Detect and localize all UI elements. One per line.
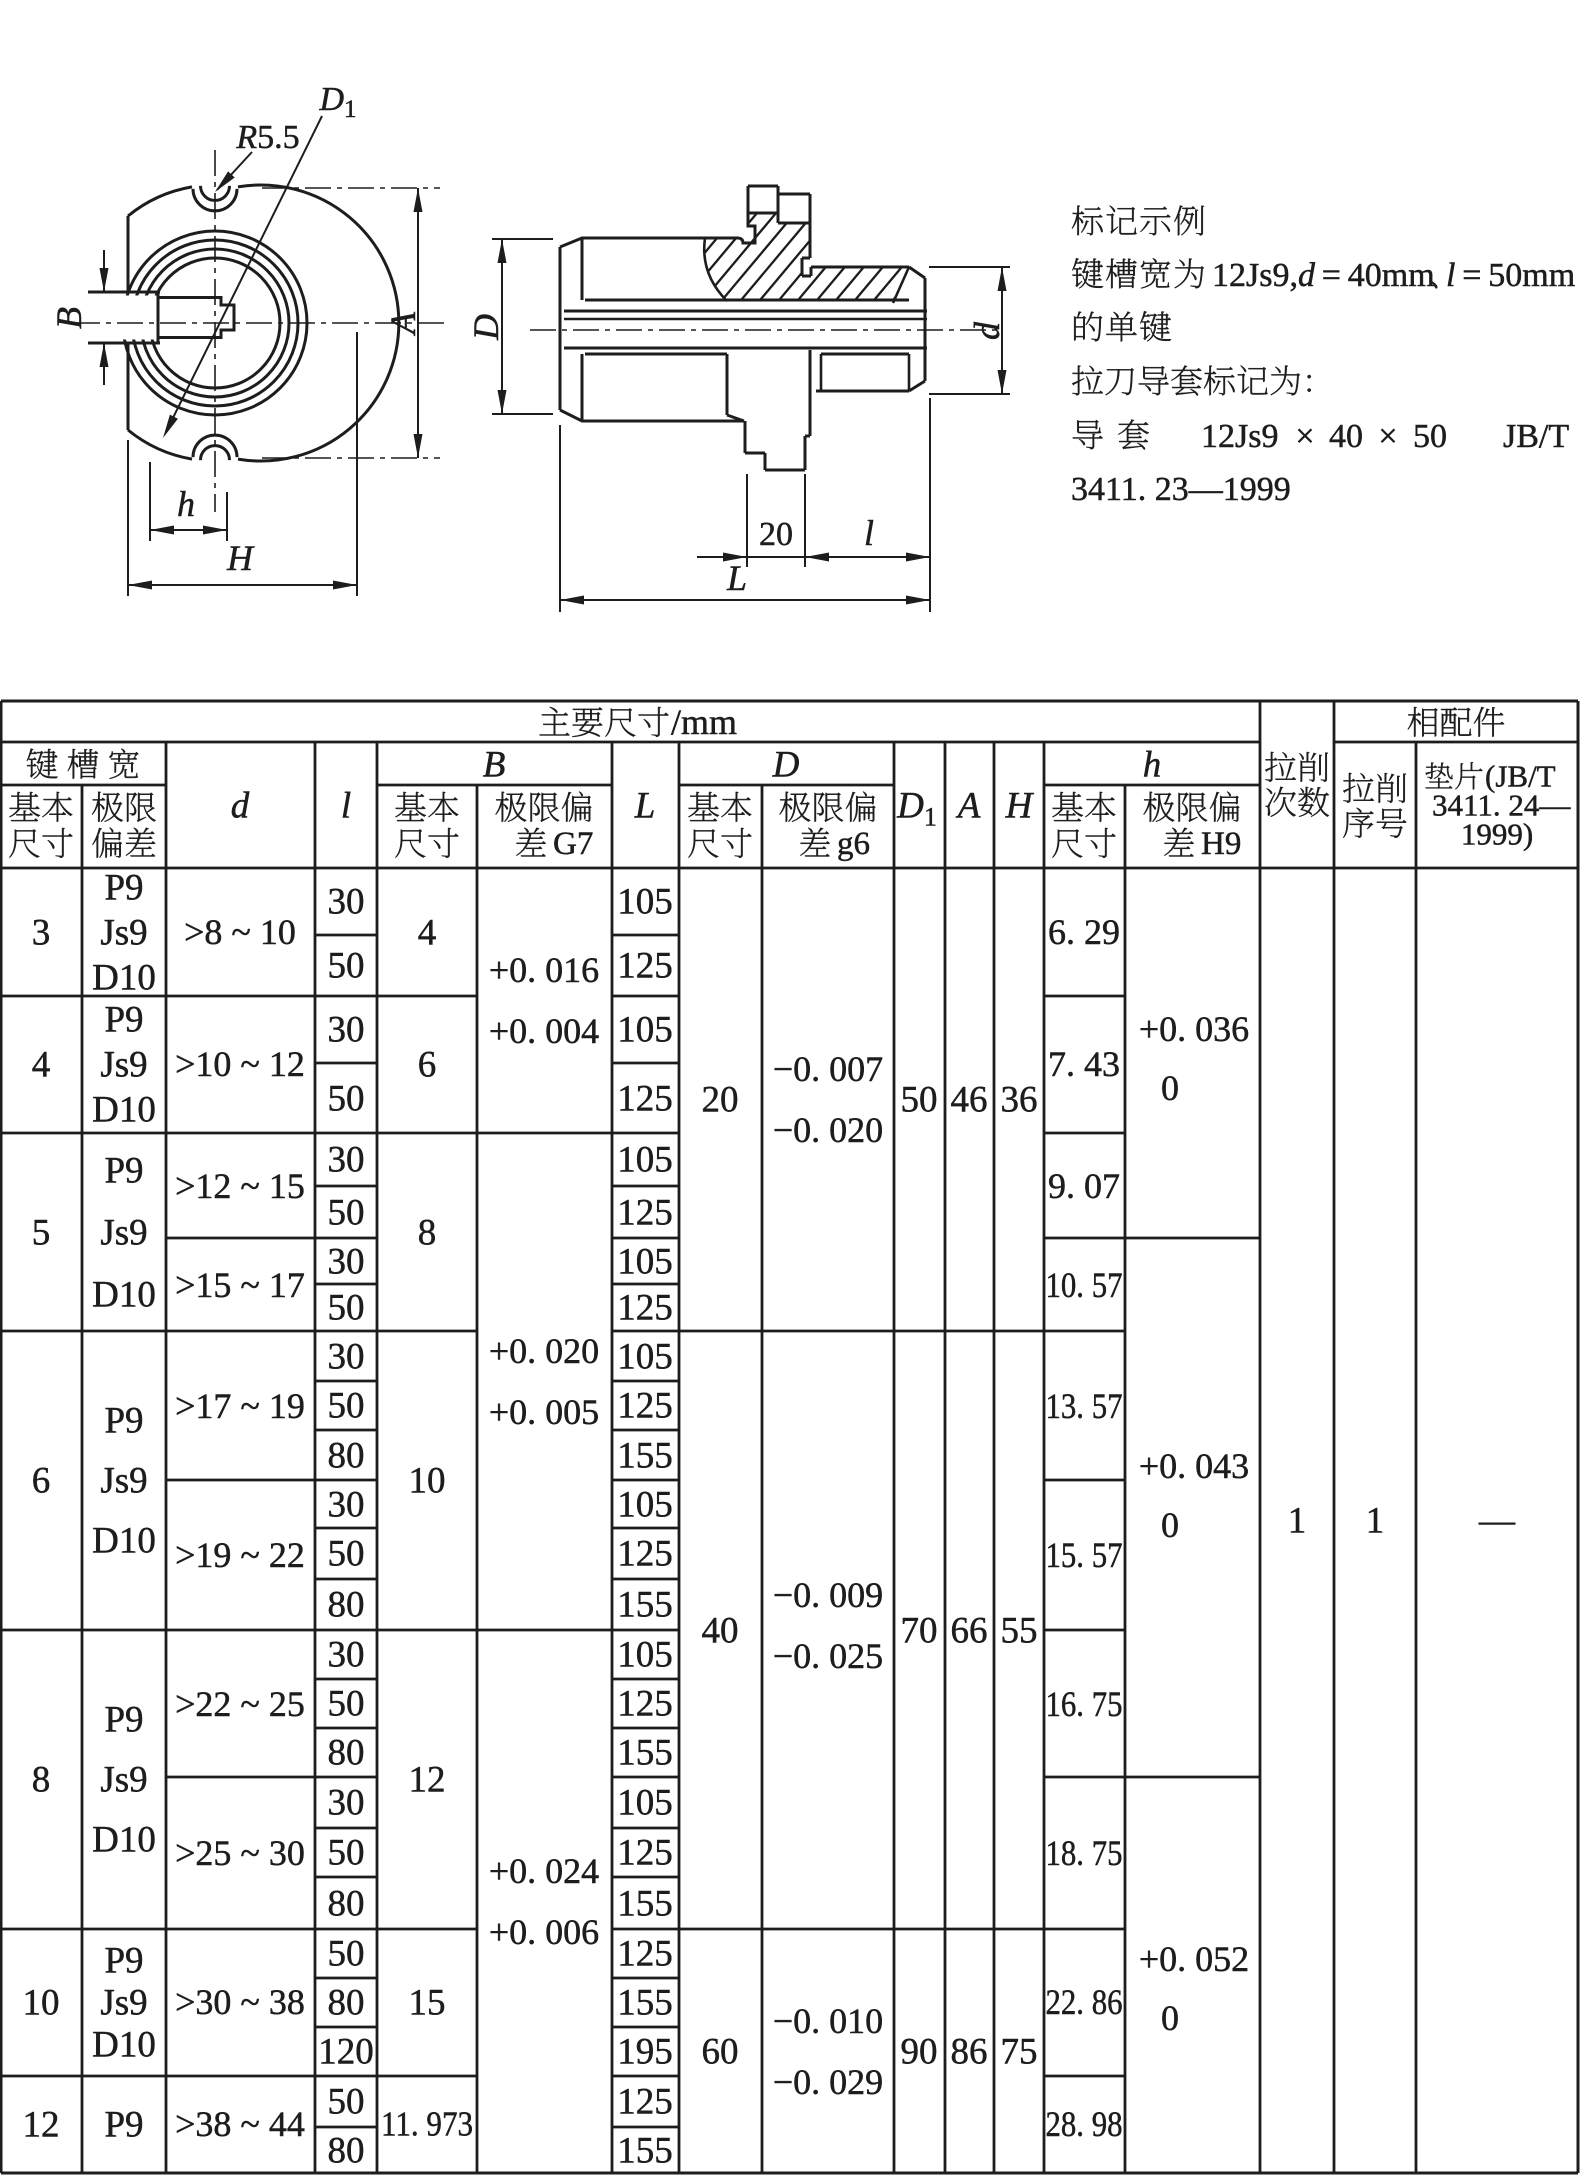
svg-text:P9: P9 [104,1400,143,1441]
svg-text:125: 125 [617,1832,673,1873]
svg-text:d: d [231,785,250,826]
svg-text:16. 75: 16. 75 [1046,1684,1123,1724]
svg-text:G7: G7 [553,826,593,862]
svg-text:6: 6 [418,1044,437,1085]
svg-text:125: 125 [617,1385,673,1426]
svg-text:125: 125 [617,945,673,986]
svg-text:l = 50mm: l = 50mm [1446,257,1575,294]
svg-text:125: 125 [617,2081,673,2122]
svg-text:P9: P9 [104,1940,143,1981]
svg-text:125: 125 [617,1533,673,1574]
svg-text:−0. 009: −0. 009 [773,1575,883,1615]
svg-text:−0. 029: −0. 029 [773,2062,883,2102]
svg-text:8: 8 [32,1759,51,1800]
svg-text:30: 30 [328,1009,365,1050]
svg-text:D10: D10 [92,957,156,998]
svg-text:6. 29: 6. 29 [1048,912,1120,952]
svg-text:+0. 024: +0. 024 [489,1851,599,1891]
svg-text:155: 155 [617,2130,673,2171]
svg-text:125: 125 [617,1078,673,1119]
svg-text:90: 90 [901,2031,938,2072]
svg-text:70: 70 [901,1610,938,1651]
svg-text:6: 6 [32,1460,51,1501]
svg-text:−0. 010: −0. 010 [773,2001,883,2041]
svg-text:105: 105 [617,1139,673,1180]
svg-text:40: 40 [1329,418,1363,455]
svg-text:105: 105 [617,1241,673,1282]
svg-text:80: 80 [328,1584,365,1625]
svg-text:+0. 036: +0. 036 [1139,1009,1249,1049]
svg-text:12: 12 [409,1759,446,1800]
svg-text:155: 155 [617,1732,673,1773]
svg-text:Js9: Js9 [100,1212,147,1253]
svg-text:P9: P9 [104,2104,143,2145]
svg-text:d: d [967,321,1007,340]
svg-text:>25 ~ 30: >25 ~ 30 [175,1833,305,1873]
svg-text:Js9: Js9 [100,1759,147,1800]
svg-text:P9: P9 [104,999,143,1040]
svg-text:−0. 007: −0. 007 [773,1049,883,1089]
svg-text:D10: D10 [92,1089,156,1130]
svg-text:12Js9,d = 40mm: 12Js9,d = 40mm [1212,257,1435,294]
svg-text:105: 105 [617,1336,673,1377]
svg-text:18. 75: 18. 75 [1046,1833,1123,1873]
svg-text:Js9: Js9 [100,912,147,953]
svg-text:9. 07: 9. 07 [1048,1166,1120,1206]
svg-text:+0. 043: +0. 043 [1139,1446,1249,1486]
svg-text:12Js9: 12Js9 [1201,418,1278,455]
svg-text:13. 57: 13. 57 [1046,1386,1123,1426]
svg-text:A: A [383,311,423,336]
svg-text:8: 8 [418,1212,437,1253]
svg-text:15. 57: 15. 57 [1046,1535,1123,1575]
svg-text:125: 125 [617,1287,673,1328]
svg-text:L: L [634,785,656,826]
svg-text:Js9: Js9 [100,1044,147,1085]
svg-text:22. 86: 22. 86 [1046,1982,1123,2022]
svg-text:−0. 025: −0. 025 [773,1636,883,1676]
svg-text:H9: H9 [1201,826,1241,862]
svg-text:L: L [726,558,747,598]
svg-text:>17 ~ 19: >17 ~ 19 [175,1386,305,1426]
svg-text:12: 12 [23,2104,60,2145]
svg-text:30: 30 [328,1484,365,1525]
svg-text:h: h [177,484,195,524]
svg-text:+0. 052: +0. 052 [1139,1939,1249,1979]
svg-text:11. 973: 11. 973 [381,2105,473,2144]
svg-text:+0. 004: +0. 004 [489,1011,599,1051]
svg-text:>19 ~ 22: >19 ~ 22 [175,1535,305,1575]
svg-text:50: 50 [328,1192,365,1233]
svg-text:7. 43: 7. 43 [1048,1044,1120,1084]
svg-text:105: 105 [617,1634,673,1675]
svg-text:30: 30 [328,1782,365,1823]
svg-text:B: B [49,307,89,329]
svg-text:D10: D10 [92,1274,156,1315]
svg-text:50: 50 [328,945,365,986]
svg-text:—: — [1478,1500,1516,1540]
svg-text:h: h [1143,744,1162,785]
svg-text:4: 4 [32,1044,51,1085]
svg-text:125: 125 [617,1192,673,1233]
svg-text:P9: P9 [104,1150,143,1191]
svg-text:A: A [955,785,981,826]
svg-text:>30 ~ 38: >30 ~ 38 [175,1982,305,2022]
svg-text:28. 98: 28. 98 [1046,2104,1123,2144]
svg-text:75: 75 [1001,2031,1038,2072]
svg-text:105: 105 [617,1009,673,1050]
svg-text:105: 105 [617,1782,673,1823]
svg-text:30: 30 [328,1336,365,1377]
svg-text:155: 155 [617,1584,673,1625]
svg-text:30: 30 [328,1241,365,1282]
svg-text:155: 155 [617,1883,673,1924]
svg-text:R5.5: R5.5 [235,119,299,156]
svg-text:JB/T: JB/T [1503,418,1569,455]
svg-text:46: 46 [951,1079,988,1120]
svg-text:>8 ~ 10: >8 ~ 10 [184,912,296,952]
svg-text:55: 55 [1001,1610,1038,1651]
svg-text:>10 ~ 12: >10 ~ 12 [175,1044,305,1084]
svg-text:50: 50 [328,1078,365,1119]
svg-text:5: 5 [32,1212,51,1253]
svg-text:10: 10 [23,1982,60,2023]
svg-text:l: l [341,785,351,826]
svg-text:1999): 1999) [1461,816,1533,851]
svg-text:×: × [1295,418,1314,455]
svg-text:4: 4 [418,912,437,953]
svg-text:D1: D1 [896,785,937,831]
svg-text:>15 ~ 17: >15 ~ 17 [175,1265,305,1305]
svg-text:30: 30 [328,881,365,922]
svg-text:30: 30 [328,1634,365,1675]
svg-text:50: 50 [328,1385,365,1426]
svg-text:10. 57: 10. 57 [1046,1265,1123,1305]
svg-text:36: 36 [1001,1079,1038,1120]
svg-text:155: 155 [617,1435,673,1476]
svg-text:+0. 020: +0. 020 [489,1331,599,1371]
svg-text:86: 86 [951,2031,988,2072]
svg-text:125: 125 [617,1933,673,1974]
svg-text:B: B [483,744,506,785]
svg-text:D10: D10 [92,1520,156,1561]
svg-text:66: 66 [951,1610,988,1651]
svg-text:H: H [226,538,255,578]
svg-text:50: 50 [328,1933,365,1974]
svg-text:+0. 016: +0. 016 [489,950,599,990]
svg-text:20: 20 [759,516,793,553]
svg-text:Js9: Js9 [100,1982,147,2023]
svg-text:60: 60 [702,2031,739,2072]
svg-text:3411. 23—1999: 3411. 23—1999 [1071,471,1291,508]
svg-text:50: 50 [901,1079,938,1120]
svg-text:D10: D10 [92,2024,156,2065]
svg-text:×: × [1378,418,1397,455]
svg-text:40: 40 [702,1610,739,1651]
svg-text:D1: D1 [318,81,356,123]
svg-text:D: D [772,744,800,785]
svg-text:g6: g6 [837,826,870,862]
svg-text:80: 80 [328,1732,365,1773]
svg-text:0: 0 [1161,1998,1179,2038]
svg-text:1: 1 [1366,1500,1385,1541]
svg-text:Js9: Js9 [100,1460,147,1501]
svg-text:105: 105 [617,1484,673,1525]
svg-text:1: 1 [1288,1500,1307,1541]
svg-text:30: 30 [328,1139,365,1180]
svg-text:80: 80 [328,1982,365,2023]
svg-text:50: 50 [328,1683,365,1724]
svg-text:D10: D10 [92,1819,156,1860]
svg-text:50: 50 [328,1533,365,1574]
svg-text:50: 50 [328,1287,365,1328]
svg-text:105: 105 [617,881,673,922]
svg-text:195: 195 [617,2031,673,2072]
svg-text:P9: P9 [104,1699,143,1740]
svg-text:50: 50 [328,2081,365,2122]
svg-text:20: 20 [702,1079,739,1120]
svg-text:H: H [1005,785,1035,826]
svg-text:120: 120 [318,2031,374,2072]
svg-text:80: 80 [328,1883,365,1924]
svg-text:>22 ~ 25: >22 ~ 25 [175,1684,305,1724]
svg-text:l: l [864,513,874,553]
svg-text:80: 80 [328,2130,365,2171]
svg-text:+0. 005: +0. 005 [489,1392,599,1432]
svg-text:50: 50 [1413,418,1447,455]
svg-text:+0. 006: +0. 006 [489,1912,599,1952]
svg-text:P9: P9 [104,867,143,908]
svg-text:>38 ~ 44: >38 ~ 44 [175,2104,305,2144]
svg-text:10: 10 [409,1460,446,1501]
svg-text:/mm: /mm [671,702,737,742]
svg-text:0: 0 [1161,1068,1179,1108]
svg-text:155: 155 [617,1982,673,2023]
svg-text:50: 50 [328,1832,365,1873]
svg-text:3: 3 [32,912,51,953]
svg-text:0: 0 [1161,1505,1179,1545]
svg-text:D: D [466,314,506,341]
svg-text:−0. 020: −0. 020 [773,1110,883,1150]
svg-text:15: 15 [409,1982,446,2023]
svg-text:80: 80 [328,1435,365,1476]
svg-text:>12 ~ 15: >12 ~ 15 [175,1166,305,1206]
svg-text:125: 125 [617,1683,673,1724]
